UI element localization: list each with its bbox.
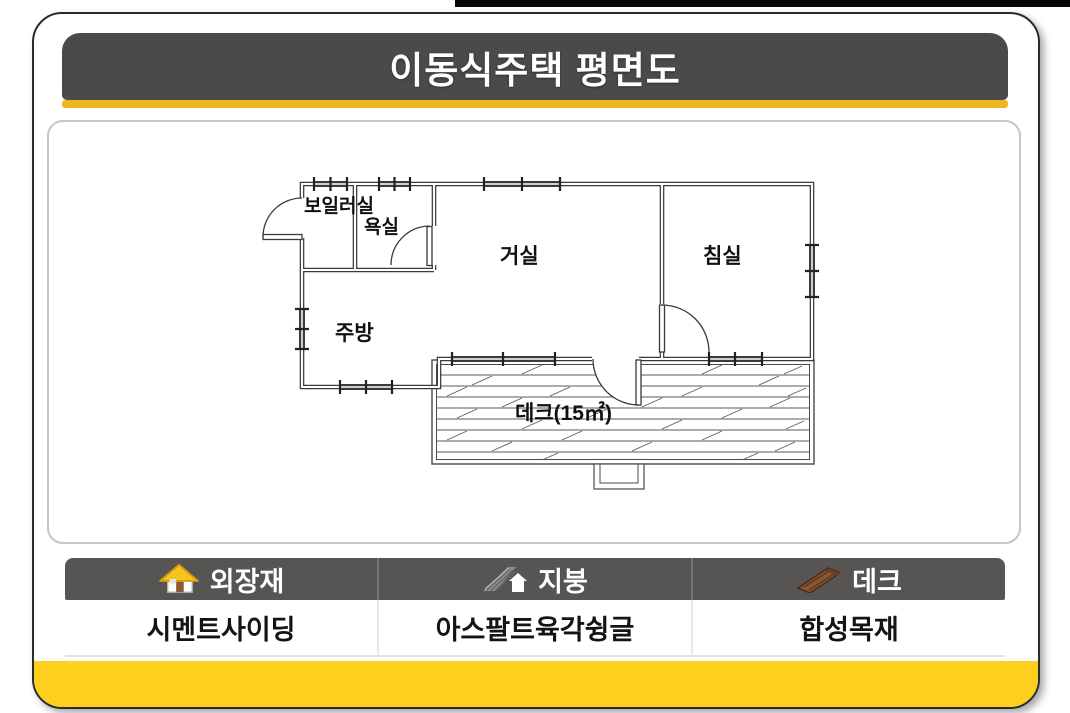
legend-value-roof: 아스팔트육각슁글	[377, 600, 691, 655]
window-kitchen-left	[295, 309, 309, 349]
legend-header-deck: 데크	[691, 558, 1005, 600]
legend-header-row: 외장재 지붕	[65, 558, 1005, 600]
window-bedroom-right	[805, 245, 819, 297]
floor-plan-panel: 보일러실 욕실 거실 침실 주방 데크(15㎡)	[47, 120, 1021, 544]
legend-header-roof: 지붕	[377, 558, 691, 600]
bottom-accent-bar	[34, 661, 1038, 707]
window-living-top	[484, 177, 560, 191]
room-label-bedroom: 침실	[703, 245, 742, 268]
poster-card: 이동식주택 평면도	[32, 12, 1040, 709]
legend-values-row: 시멘트사이딩 아스팔트육각슁글 합성목재	[65, 600, 1005, 657]
floor-plan-drawing: 보일러실 욕실 거실 침실 주방 데크(15㎡)	[252, 152, 832, 502]
legend-label-roof: 지붕	[538, 560, 588, 599]
room-label-bath: 욕실	[364, 216, 399, 238]
entry-door	[263, 198, 302, 240]
header-underline	[62, 100, 1008, 108]
legend-value-exterior: 시멘트사이딩	[65, 600, 377, 655]
top-edge-strip	[455, 0, 1070, 7]
room-label-boiler: 보일러실	[304, 195, 374, 217]
legend-header-exterior: 외장재	[65, 558, 377, 600]
room-label-kitchen: 주방	[335, 322, 374, 345]
header-bar: 이동식주택 평면도	[62, 33, 1008, 100]
deck-steps	[594, 464, 644, 489]
window-bathroom-top	[379, 177, 410, 191]
room-label-deck: 데크(15㎡)	[515, 401, 612, 425]
legend-label-deck: 데크	[852, 560, 902, 599]
window-boiler-top	[314, 177, 347, 191]
deck-plank-icon	[796, 565, 842, 593]
legend-value-deck: 합성목재	[691, 600, 1005, 655]
legend-label-exterior: 외장재	[210, 560, 285, 599]
house-icon	[158, 562, 200, 596]
window-kitchen-bottom	[340, 380, 392, 394]
materials-legend: 외장재 지붕	[65, 558, 1005, 657]
room-label-living: 거실	[500, 245, 539, 268]
page-title: 이동식주택 평면도	[389, 40, 681, 94]
roof-icon	[482, 564, 528, 594]
